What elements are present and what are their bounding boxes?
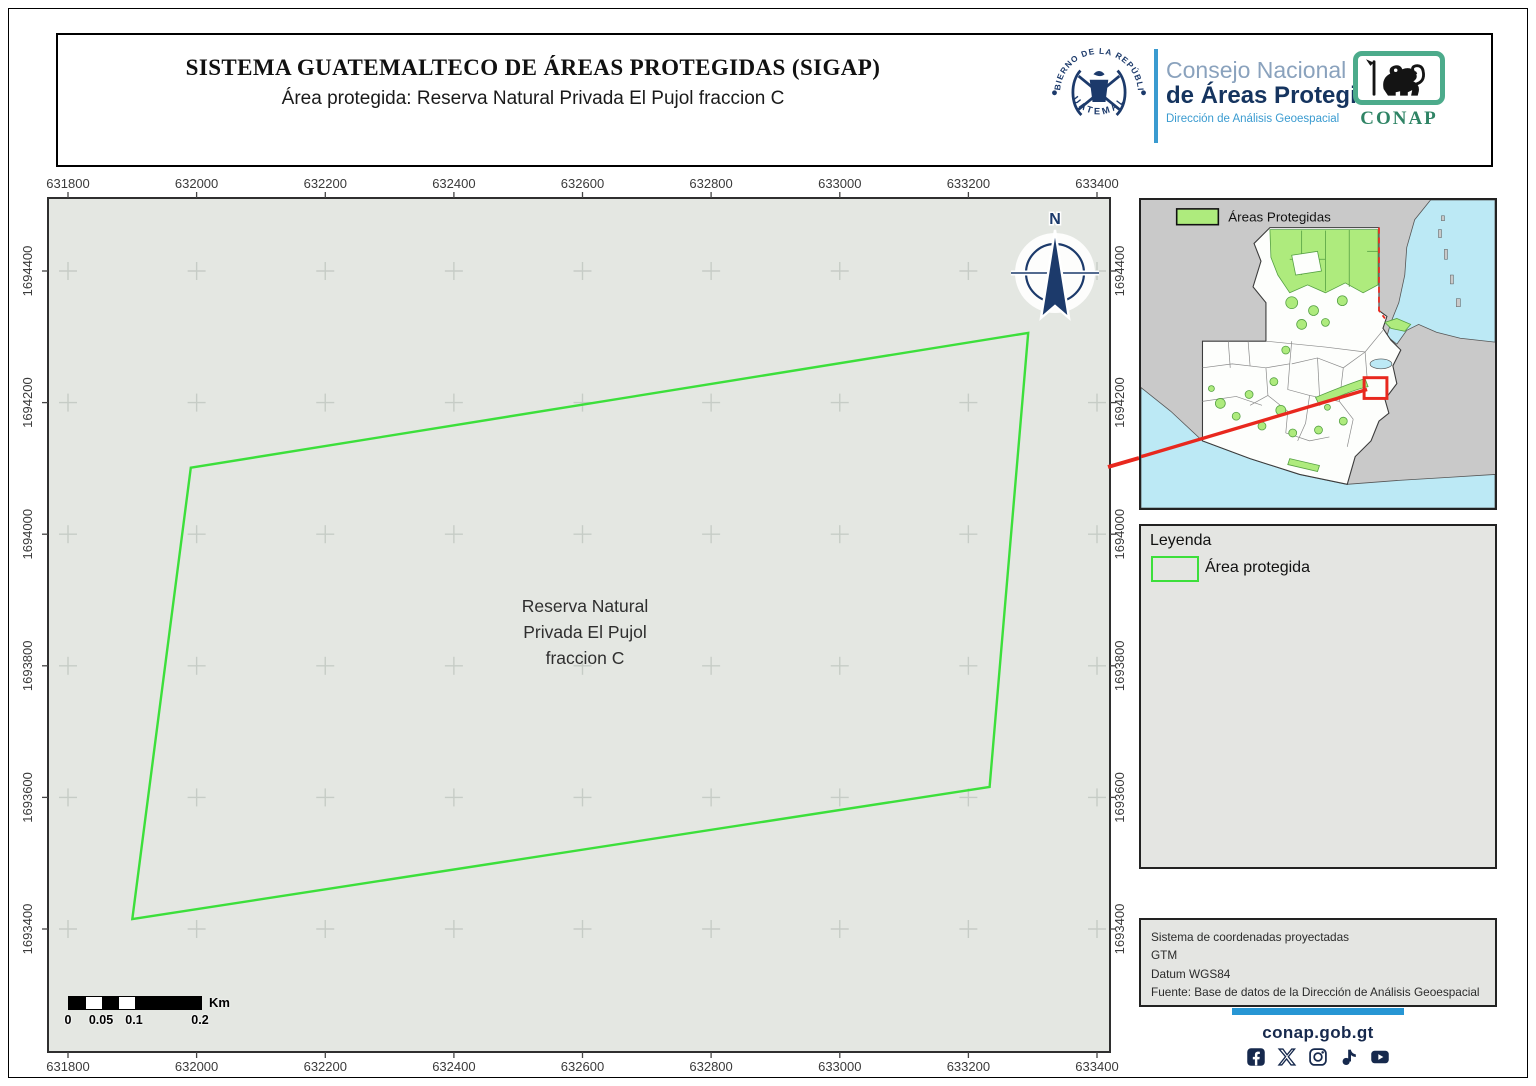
footer-website: conap.gob.gt — [1139, 1023, 1497, 1043]
svg-text:1694400: 1694400 — [1112, 246, 1127, 297]
scale-bar-label: 0.2 — [191, 1013, 208, 1027]
youtube-icon — [1370, 1047, 1390, 1067]
svg-text:633400: 633400 — [1075, 176, 1118, 191]
facebook-icon — [1246, 1047, 1266, 1067]
svg-text:1694000: 1694000 — [1112, 509, 1127, 560]
svg-text:633000: 633000 — [818, 176, 861, 191]
svg-text:1693400: 1693400 — [1112, 904, 1127, 955]
inset-legend: Áreas Protegidas — [1177, 209, 1331, 225]
conap-wordmark: CONAP — [1352, 108, 1446, 130]
svg-text:632000: 632000 — [175, 176, 218, 191]
scale-bar-label: 0.1 — [125, 1013, 142, 1027]
svg-text:1693600: 1693600 — [20, 772, 35, 823]
legend-item-label: Área protegida — [1205, 559, 1310, 577]
guatemala-inset-map: Áreas Protegidas — [1139, 198, 1497, 510]
svg-text:1693600: 1693600 — [1112, 772, 1127, 823]
svg-text:633000: 633000 — [818, 1059, 861, 1074]
svg-text:1694200: 1694200 — [1112, 377, 1127, 428]
svg-text:632000: 632000 — [175, 1059, 218, 1074]
footer-accent-bar — [1232, 1008, 1404, 1015]
svg-text:632800: 632800 — [689, 1059, 732, 1074]
header: SISTEMA GUATEMALTECO DE ÁREAS PROTEGIDAS… — [56, 33, 1493, 167]
north-label: N — [1049, 211, 1061, 228]
scale-bar-label: 0.05 — [89, 1013, 113, 1027]
svg-text:Privada El Pujol: Privada El Pujol — [523, 622, 647, 642]
lake-izabal — [1370, 359, 1392, 369]
svg-text:1694200: 1694200 — [20, 377, 35, 428]
main-map: 6318006318006320006320006322006322006324… — [8, 170, 1138, 1075]
svg-text:1694400: 1694400 — [20, 246, 35, 297]
svg-text:632200: 632200 — [304, 176, 347, 191]
svg-text:Reserva Natural: Reserva Natural — [522, 596, 648, 616]
svg-text:1693800: 1693800 — [1112, 640, 1127, 691]
svg-text:632800: 632800 — [689, 176, 732, 191]
inset-legend-swatch — [1177, 209, 1219, 225]
svg-text:632600: 632600 — [561, 176, 604, 191]
info-line: Datum WGS84 — [1151, 965, 1485, 983]
svg-text:633400: 633400 — [1075, 1059, 1118, 1074]
svg-text:632200: 632200 — [304, 1059, 347, 1074]
svg-text:1693400: 1693400 — [20, 904, 35, 955]
scale-bar-label: 0 — [65, 1013, 72, 1027]
page-title: SISTEMA GUATEMALTECO DE ÁREAS PROTEGIDAS… — [68, 55, 998, 81]
svg-text:632600: 632600 — [561, 1059, 604, 1074]
guatemala-government-seal-icon: GOBIERNO DE LA REPÚBLICA GUATEMALA — [1048, 39, 1150, 141]
svg-text:633200: 633200 — [947, 1059, 990, 1074]
header-titles: SISTEMA GUATEMALTECO DE ÁREAS PROTEGIDAS… — [68, 55, 998, 110]
svg-text:632400: 632400 — [432, 176, 475, 191]
scale-bar: 00.050.10.2 Km — [68, 996, 308, 1036]
scale-bar-graphic — [68, 996, 202, 1010]
svg-text:1693800: 1693800 — [20, 640, 35, 691]
conap-logo: CONAP — [1352, 51, 1446, 130]
svg-text:631800: 631800 — [46, 1059, 89, 1074]
svg-text:633200: 633200 — [947, 176, 990, 191]
svg-text:631800: 631800 — [46, 176, 89, 191]
social-icons — [1139, 1047, 1497, 1067]
legend-panel: Leyenda Área protegida — [1139, 524, 1497, 869]
svg-text:632400: 632400 — [432, 1059, 475, 1074]
x-icon — [1277, 1047, 1297, 1067]
instagram-icon — [1308, 1047, 1328, 1067]
legend-title: Leyenda — [1150, 532, 1211, 550]
conap-monkey-icon — [1353, 51, 1445, 105]
info-line: GTM — [1151, 946, 1485, 964]
logo-separator — [1154, 49, 1158, 143]
page-subtitle: Área protegida: Reserva Natural Privada … — [68, 88, 998, 110]
scale-bar-unit: Km — [209, 995, 230, 1010]
inset-legend-label: Áreas Protegidas — [1228, 210, 1331, 225]
footer: conap.gob.gt — [1139, 1008, 1497, 1067]
tiktok-icon — [1339, 1047, 1359, 1067]
svg-text:fraccion C: fraccion C — [546, 648, 625, 668]
info-line: Sistema de coordenadas proyectadas — [1151, 928, 1485, 946]
legend-area-swatch — [1151, 556, 1199, 582]
info-line: Fuente: Base de datos de la Dirección de… — [1151, 983, 1485, 1001]
svg-text:1694000: 1694000 — [20, 509, 35, 560]
coordinate-system-info: Sistema de coordenadas proyectadas GTM D… — [1139, 918, 1497, 1007]
